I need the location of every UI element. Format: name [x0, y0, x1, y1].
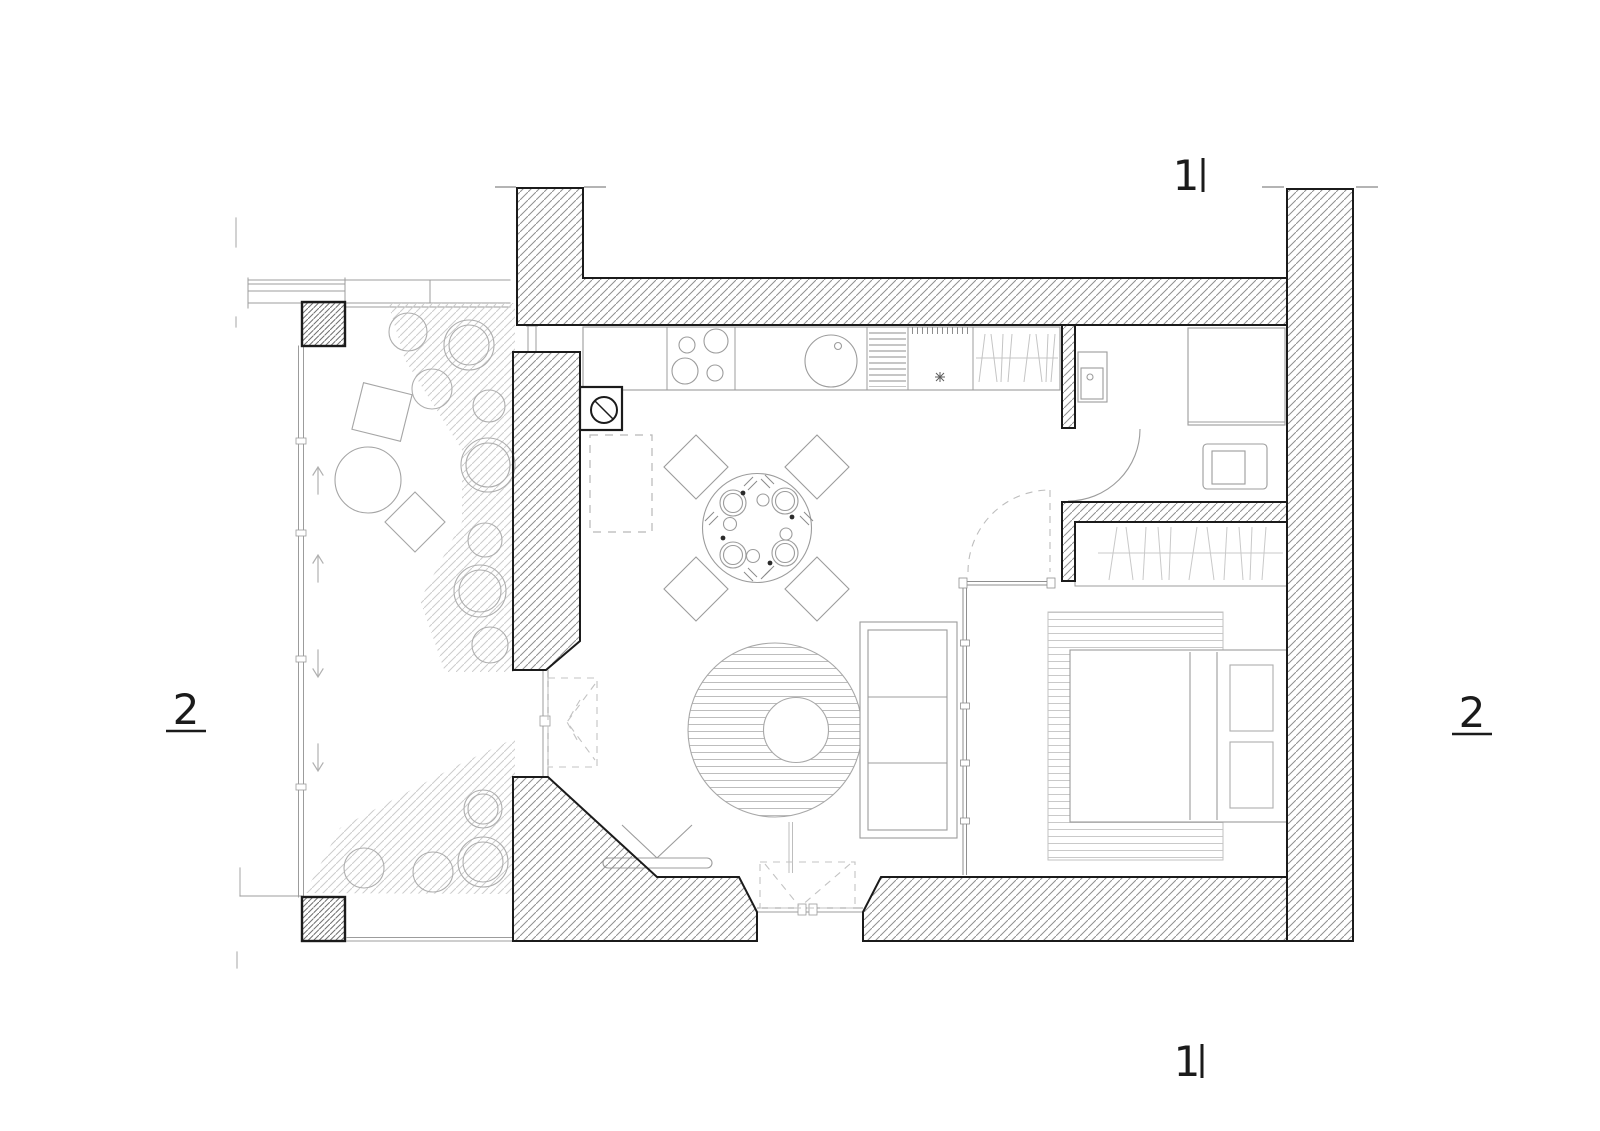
- section-label-1-bottom: 1: [1174, 1037, 1201, 1086]
- wall-right: [1287, 189, 1353, 941]
- wall-bottom-right: [863, 877, 1287, 941]
- section-label-1-top: 1: [1173, 151, 1200, 200]
- double-bed: [1070, 650, 1287, 822]
- dining-table: [703, 474, 812, 583]
- section-label-2-left: 2: [173, 685, 200, 734]
- dish-drainer-icon: [869, 331, 906, 387]
- column: [302, 897, 345, 941]
- paper-background: [0, 0, 1600, 1131]
- living-rug: [688, 643, 862, 817]
- round-table: [335, 447, 401, 513]
- sofa: [860, 622, 957, 838]
- floor-plan-canvas: 1 1 2 2: [0, 0, 1600, 1131]
- pillow-icon: [1230, 742, 1273, 808]
- counter-ticks: [910, 327, 972, 334]
- wardrobe: [1075, 522, 1287, 586]
- pillow-icon: [1230, 665, 1273, 731]
- pipe-riser: [580, 387, 622, 430]
- wall-kitchen-bath: [1062, 325, 1075, 428]
- floor-plan-page: 1 1 2 2: [0, 0, 1600, 1131]
- coffee-table: [764, 698, 829, 763]
- wall-entry-left: [513, 352, 580, 670]
- appliance-mark: [935, 372, 945, 382]
- column: [302, 302, 345, 346]
- section-label-2-right: 2: [1459, 688, 1486, 737]
